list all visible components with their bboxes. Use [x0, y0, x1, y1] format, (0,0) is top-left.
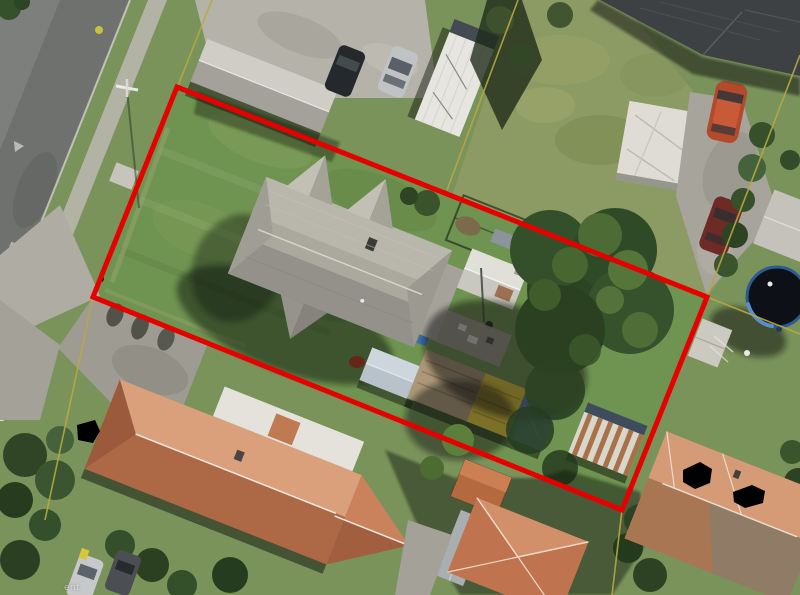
white-object — [744, 350, 750, 356]
aerial-imagery-canvas[interactable] — [0, 0, 800, 595]
bush — [420, 456, 444, 480]
bush — [414, 190, 440, 216]
aerial-map-view[interactable]: ent — [0, 0, 800, 595]
bush — [400, 187, 418, 205]
yellow-shrub — [95, 26, 103, 34]
